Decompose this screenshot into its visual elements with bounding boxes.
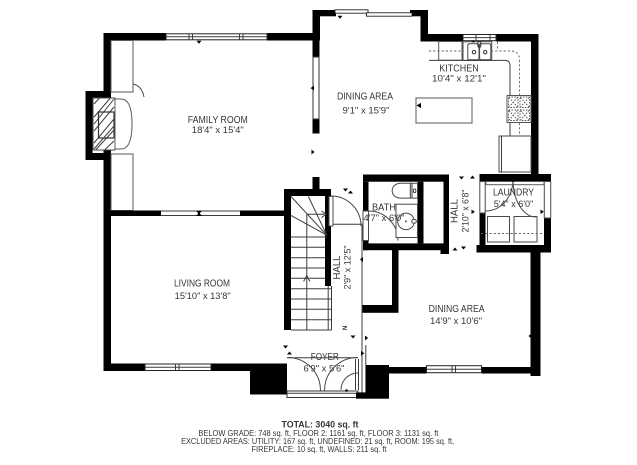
svg-text:HALL: HALL — [332, 255, 343, 280]
svg-text:9'1" x 15'9": 9'1" x 15'9" — [343, 106, 390, 116]
svg-text:5'4" x 6'0": 5'4" x 6'0" — [494, 199, 534, 209]
svg-text:LIVING ROOM: LIVING ROOM — [174, 279, 230, 290]
svg-text:15'10" x 13'8": 15'10" x 13'8" — [175, 291, 231, 301]
svg-text:18'4" x 15'4": 18'4" x 15'4" — [192, 125, 244, 135]
svg-text:2'10" x 6'8": 2'10" x 6'8" — [461, 190, 471, 233]
svg-text:BATH: BATH — [372, 202, 396, 213]
svg-text:N: N — [341, 326, 348, 331]
svg-text:TOTAL: 3040 sq. ft: TOTAL: 3040 sq. ft — [282, 419, 359, 429]
svg-text:FIREPLACE: 10 sq. ft, WALLS: 2: FIREPLACE: 10 sq. ft, WALLS: 211 sq. ft — [252, 445, 388, 454]
svg-text:4'7" x 6'0": 4'7" x 6'0" — [364, 213, 405, 223]
svg-text:LAUNDRY: LAUNDRY — [493, 188, 534, 199]
svg-text:DINING AREA: DINING AREA — [337, 92, 393, 103]
svg-text:DINING AREA: DINING AREA — [429, 304, 485, 315]
svg-text:6'9" x 5'6": 6'9" x 5'6" — [304, 363, 345, 373]
svg-text:FOYER: FOYER — [311, 352, 339, 363]
svg-text:2'9" x 12'5": 2'9" x 12'5" — [343, 246, 353, 290]
svg-text:10'4" x 12'1": 10'4" x 12'1" — [432, 74, 486, 84]
svg-text:14'9" x 10'6": 14'9" x 10'6" — [430, 316, 482, 326]
svg-text:HALL: HALL — [450, 198, 461, 223]
